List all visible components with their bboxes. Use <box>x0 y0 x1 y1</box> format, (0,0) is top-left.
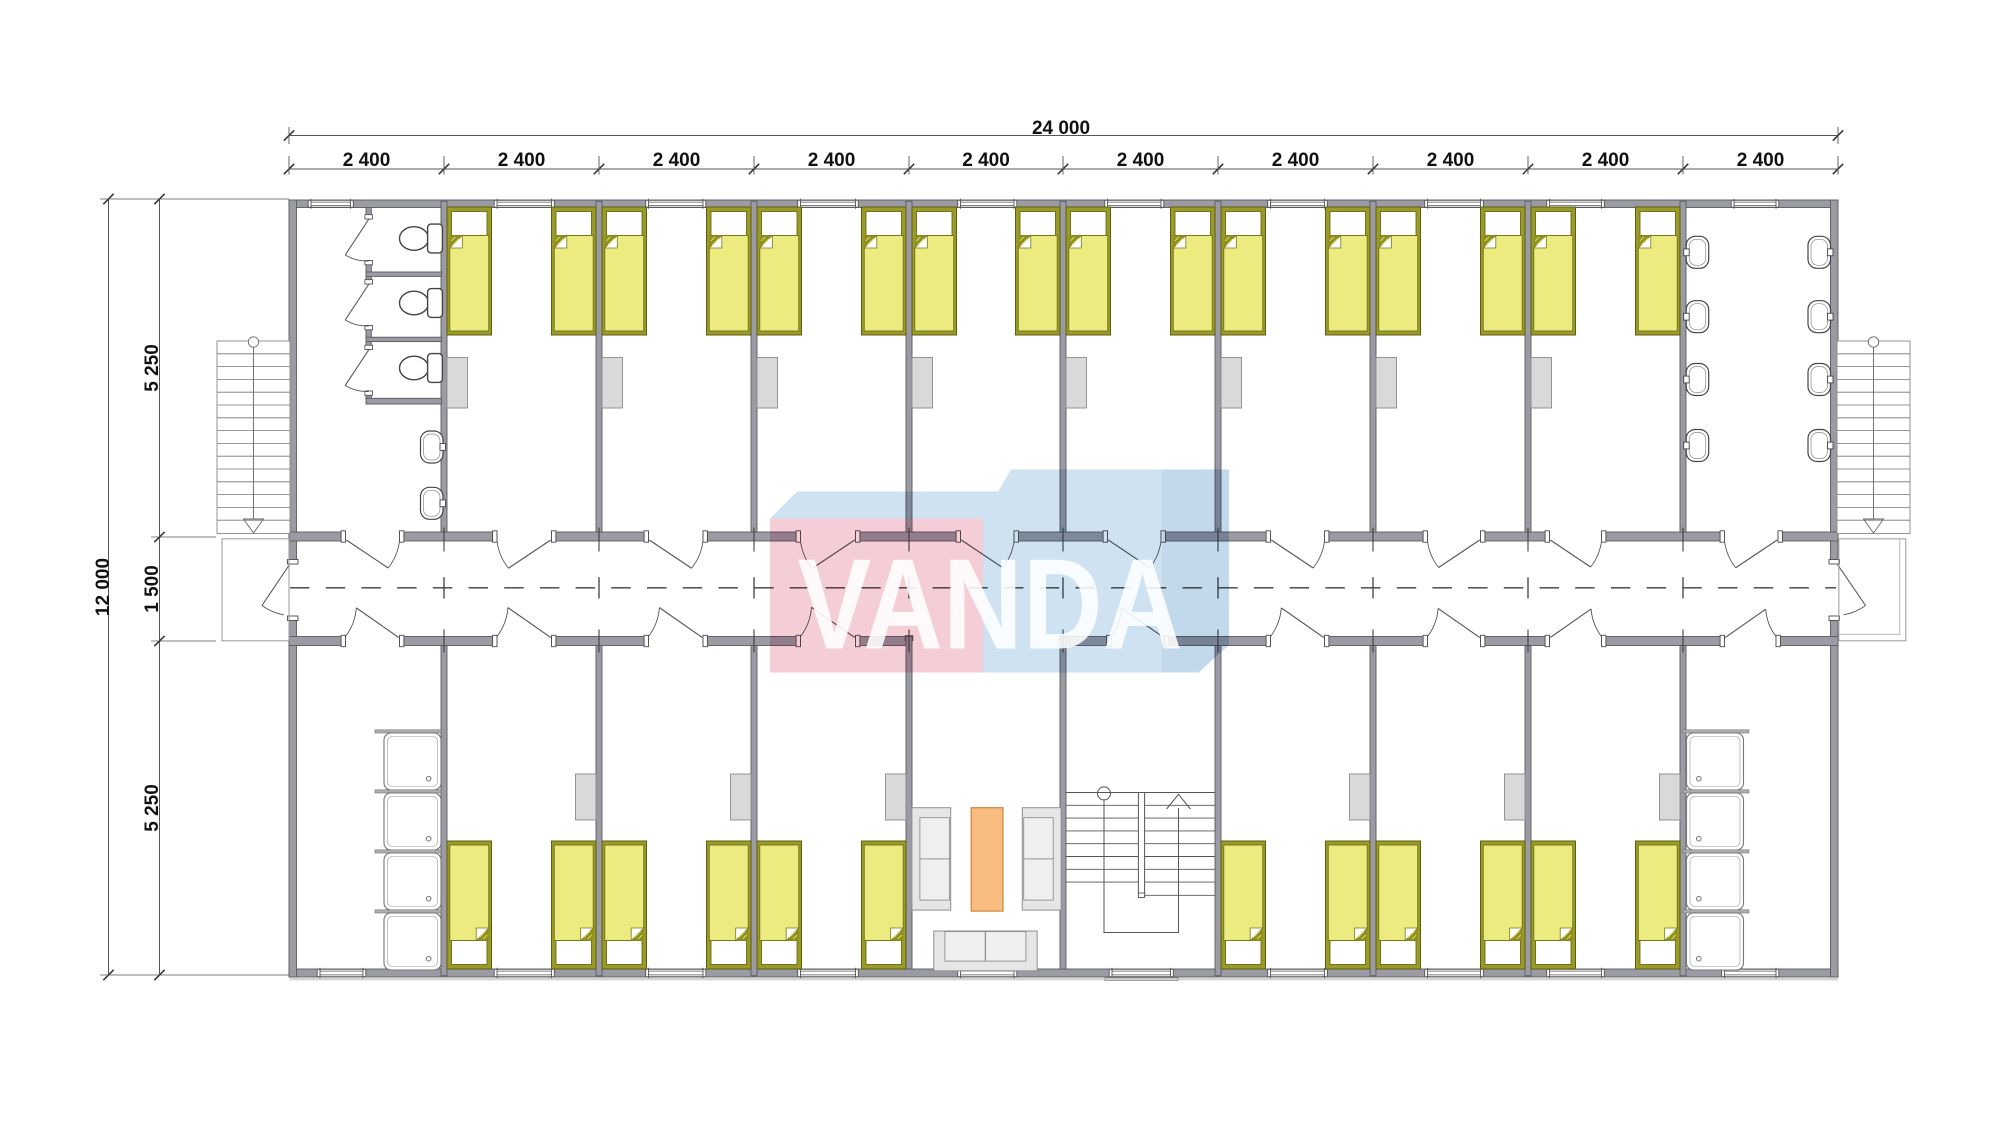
svg-text:VANDA: VANDA <box>798 533 1183 677</box>
svg-text:2 400: 2 400 <box>808 150 856 171</box>
svg-text:5 250: 5 250 <box>142 784 163 832</box>
svg-text:24 000: 24 000 <box>1032 118 1090 139</box>
svg-text:5 250: 5 250 <box>142 344 163 392</box>
svg-text:2 400: 2 400 <box>343 150 391 171</box>
svg-text:2 400: 2 400 <box>653 150 701 171</box>
svg-text:2 400: 2 400 <box>1272 150 1320 171</box>
svg-text:2 400: 2 400 <box>1737 150 1785 171</box>
svg-text:2 400: 2 400 <box>1582 150 1630 171</box>
svg-text:2 400: 2 400 <box>498 150 546 171</box>
svg-text:12 000: 12 000 <box>93 558 114 616</box>
svg-text:2 400: 2 400 <box>1427 150 1475 171</box>
svg-text:1 500: 1 500 <box>142 565 163 613</box>
svg-text:2 400: 2 400 <box>1117 150 1165 171</box>
svg-text:2 400: 2 400 <box>962 150 1010 171</box>
